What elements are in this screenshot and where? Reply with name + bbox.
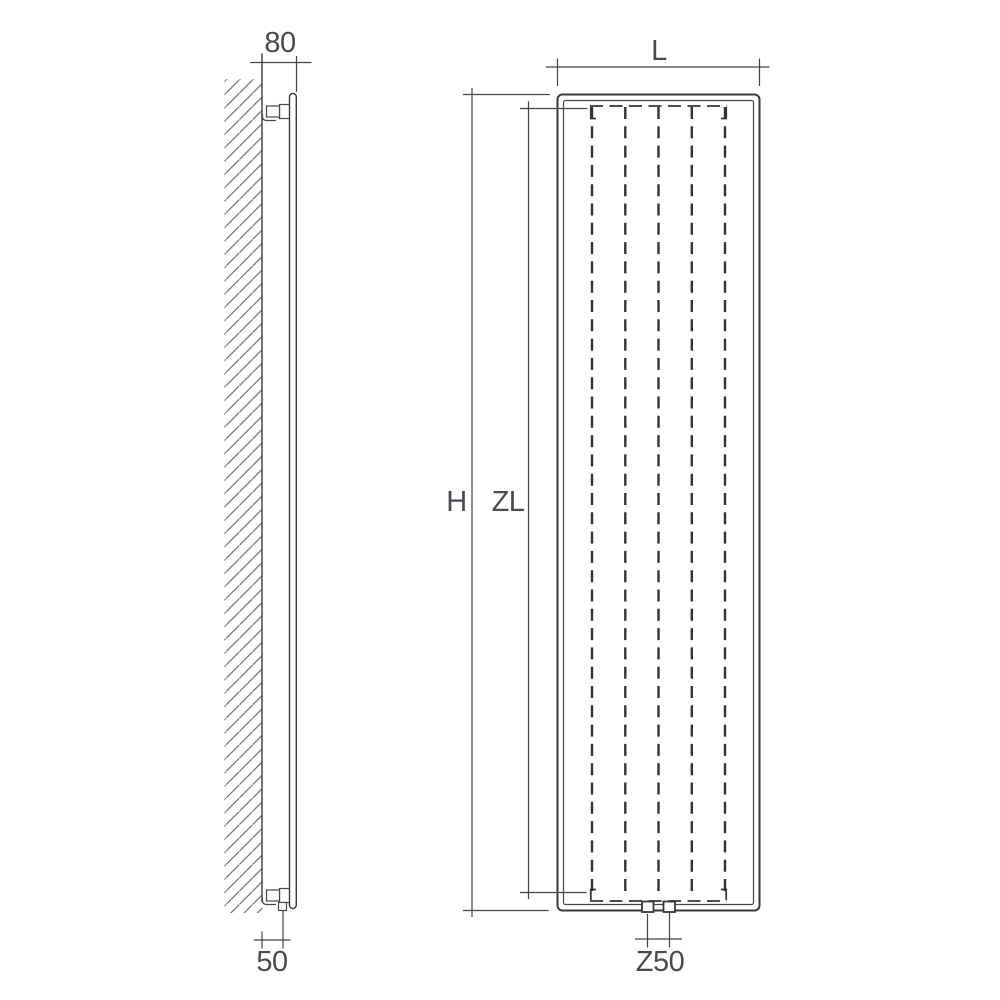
technical-drawing-canvas: 80 50 [0, 0, 1000, 1000]
bottom-pipe-stub [279, 903, 287, 911]
front-elevation-view: L H ZL Z50 [446, 35, 769, 978]
dimension-wall-offset: 50 [254, 911, 291, 979]
radiator-dimension-diagram: 80 50 [0, 0, 1000, 1000]
dim-label-wall-offset: 50 [256, 946, 287, 978]
dim-label-width: L [651, 35, 667, 67]
right-valve-connector [664, 902, 676, 913]
left-valve-connector [642, 902, 654, 913]
dim-label-height: H [446, 486, 466, 518]
dim-label-valve-spacing: Z50 [636, 946, 684, 978]
wall-hatching [225, 79, 263, 913]
dim-label-depth: 80 [264, 27, 295, 59]
dim-label-connection-length: ZL [492, 486, 525, 518]
radiator-panel-side [290, 94, 297, 909]
dimension-valve-spacing: Z50 [635, 913, 684, 978]
side-profile-view: 80 50 [225, 27, 312, 978]
dimension-width: L [546, 35, 770, 86]
top-bracket [263, 105, 291, 121]
bottom-bracket [263, 889, 291, 911]
